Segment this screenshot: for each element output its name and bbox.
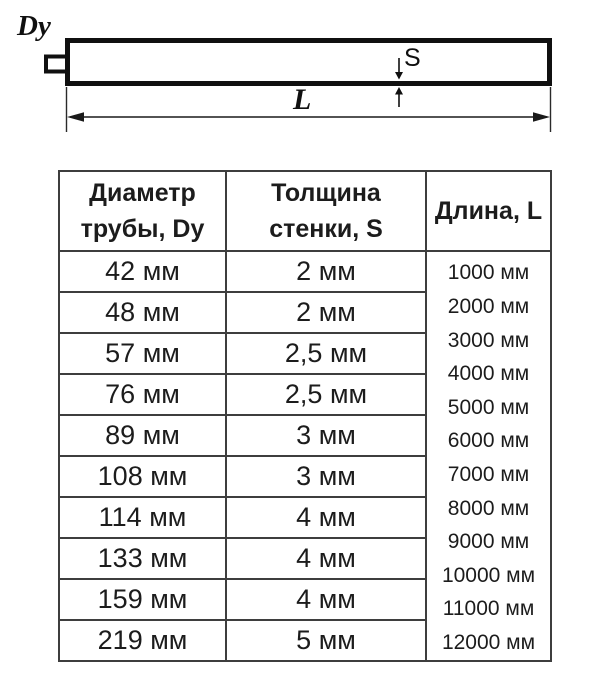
- length-value: 10000 мм: [427, 559, 550, 593]
- thickness-value: 2,5 мм: [226, 333, 426, 374]
- thickness-value: 5 мм: [226, 620, 426, 661]
- length-values-cell: 1000 мм 2000 мм 3000 мм 4000 мм 5000 мм …: [426, 251, 551, 661]
- diameter-value: 76 мм: [59, 374, 226, 415]
- wall-thickness-label: S: [404, 44, 421, 73]
- length-value: 2000 мм: [427, 290, 550, 324]
- thickness-value: 4 мм: [226, 497, 426, 538]
- thickness-value: 3 мм: [226, 415, 426, 456]
- diameter-value: 133 мм: [59, 538, 226, 579]
- length-value: 5000 мм: [427, 391, 550, 425]
- length-label: L: [293, 83, 311, 117]
- thickness-value: 2 мм: [226, 292, 426, 333]
- length-value: 3000 мм: [427, 324, 550, 358]
- header-length-line1: Длина, L: [427, 193, 550, 229]
- length-value: 11000 мм: [427, 592, 550, 626]
- thickness-value: 4 мм: [226, 538, 426, 579]
- header-diameter-line2: трубы, Dy: [60, 211, 225, 247]
- header-diameter-line1: Диаметр: [60, 175, 225, 211]
- length-value: 7000 мм: [427, 458, 550, 492]
- diameter-value: 114 мм: [59, 497, 226, 538]
- table-header-row: Диаметр трубы, Dy Толщина стенки, S Длин…: [59, 171, 551, 251]
- nominal-diameter-label: Dy: [17, 10, 51, 43]
- diameter-value: 57 мм: [59, 333, 226, 374]
- thickness-value: 3 мм: [226, 456, 426, 497]
- length-value: 4000 мм: [427, 357, 550, 391]
- length-value: 6000 мм: [427, 424, 550, 458]
- thickness-value: 4 мм: [226, 579, 426, 620]
- header-length: Длина, L: [426, 171, 551, 251]
- pipe-outline-shape: [68, 41, 550, 84]
- table-row: 42 мм 2 мм 1000 мм 2000 мм 3000 мм 4000 …: [59, 251, 551, 292]
- pipe-spec-table: Диаметр трубы, Dy Толщина стенки, S Длин…: [58, 170, 552, 662]
- diameter-value: 42 мм: [59, 251, 226, 292]
- header-thickness-line1: Толщина: [227, 175, 425, 211]
- page: Dy S L Диаметр трубы, Dy Толщина стенки,…: [0, 0, 608, 700]
- length-value: 12000 мм: [427, 626, 550, 660]
- diameter-value: 48 мм: [59, 292, 226, 333]
- thickness-value: 2 мм: [226, 251, 426, 292]
- header-thickness: Толщина стенки, S: [226, 171, 426, 251]
- diameter-value: 89 мм: [59, 415, 226, 456]
- length-value: 9000 мм: [427, 525, 550, 559]
- header-diameter: Диаметр трубы, Dy: [59, 171, 226, 251]
- diameter-value: 108 мм: [59, 456, 226, 497]
- length-value: 8000 мм: [427, 492, 550, 526]
- header-thickness-line2: стенки, S: [227, 211, 425, 247]
- length-value: 1000 мм: [427, 256, 550, 290]
- pipe-drawing: Dy S L: [0, 0, 608, 160]
- diameter-value: 219 мм: [59, 620, 226, 661]
- thickness-value: 2,5 мм: [226, 374, 426, 415]
- diameter-value: 159 мм: [59, 579, 226, 620]
- pipe-drawing-canvas: [0, 0, 608, 160]
